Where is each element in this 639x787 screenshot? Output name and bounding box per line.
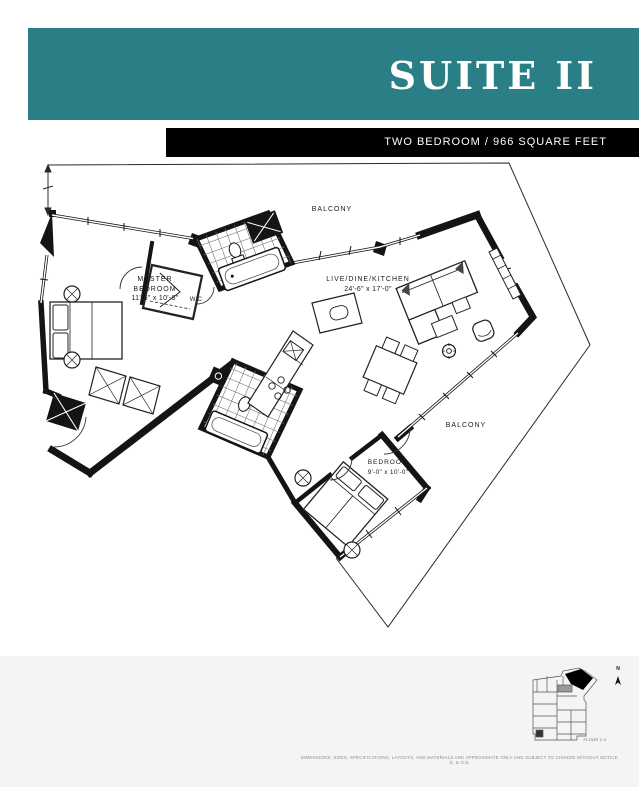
master-bed [50,302,122,359]
accent-chair [471,318,496,343]
kitchen [248,293,362,417]
master-bedroom-name-1: MASTER [105,275,205,285]
label-wc: W/C [180,296,212,306]
dimension-marker [43,165,53,215]
bedroom-dims: 9'-0" x 10'-0" [338,468,438,478]
label-balcony-top: BALCONY [282,205,382,215]
floor-lamp-icon [442,343,456,359]
north-compass-icon: N [613,667,623,690]
compass-label: N [613,667,623,672]
label-live-dine-kitchen: LIVE/DINE/KITCHEN 24'-6" x 17'-0" [308,275,428,294]
closets [46,367,160,431]
suite-banner: SUITE II [28,28,639,120]
label-balcony-right: BALCONY [416,421,516,431]
subtitle-bar: TWO BEDROOM / 966 SQUARE FEET [166,128,639,157]
disclaimer-text: DIMENSIONS, SIZES, SPECIFICATIONS, LAYOU… [300,755,620,765]
live-dine-kitchen-dims: 24'-6" x 17'-0" [308,285,428,295]
kitchen-island [312,293,362,333]
label-bedroom: BEDROOM 9'-0" x 10'-0" [338,458,438,477]
keyplan-map [527,666,607,744]
keyplan-caption: FLOOR 2-4 [560,737,606,742]
floorplan-drawing [0,155,639,655]
dining-table [358,335,421,406]
live-dine-kitchen-name: LIVE/DINE/KITCHEN [308,275,428,285]
tv-unit [489,248,521,299]
floorplan-area: BALCONY MASTER BEDROOM 11'-6" x 10'-8" W… [0,155,639,655]
suite-subtitle: TWO BEDROOM / 966 SQUARE FEET [384,128,607,157]
page-title: SUITE II [389,28,597,120]
bedroom-name: BEDROOM [338,458,438,468]
master-bedroom-name-2: BEDROOM [105,285,205,295]
